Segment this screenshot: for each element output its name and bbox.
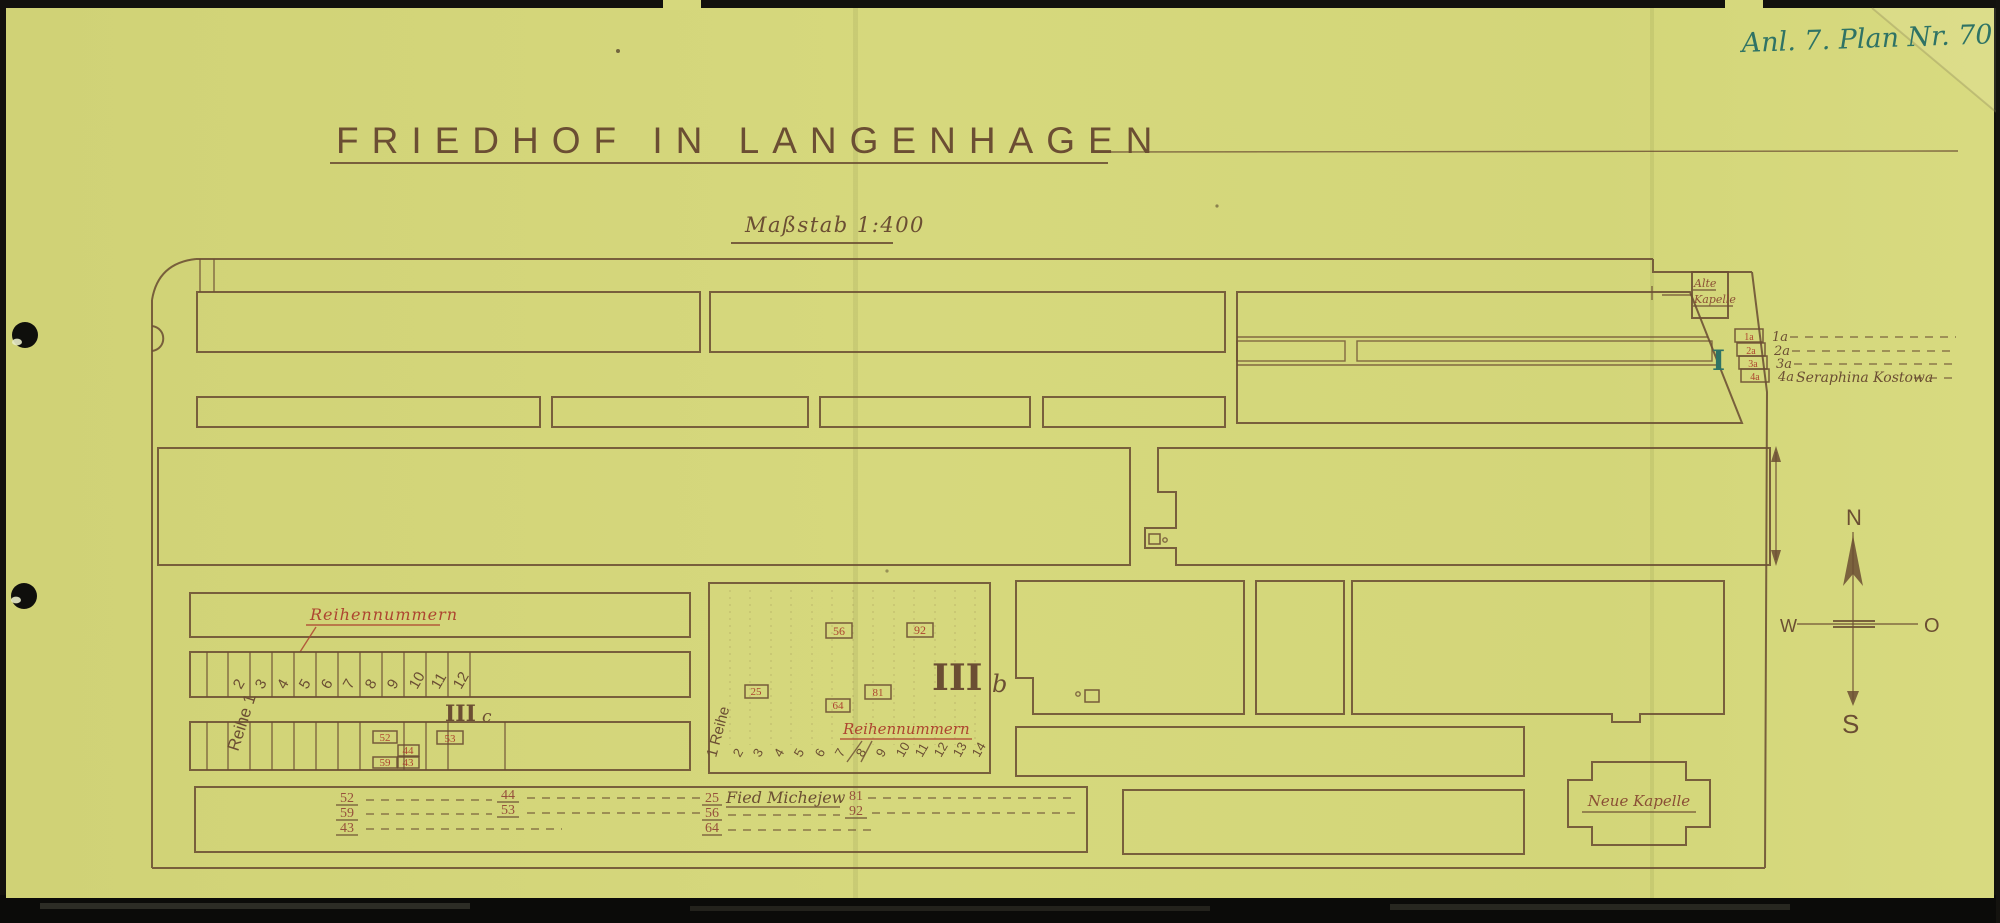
paper-speck bbox=[1215, 204, 1218, 207]
fold-crease bbox=[1650, 8, 1654, 898]
section-mark: I bbox=[1712, 344, 1725, 377]
ledger-number: 56 bbox=[705, 806, 719, 821]
ledger-number: 25 bbox=[705, 791, 719, 806]
paper-speck bbox=[885, 569, 888, 572]
grave-number: 53 bbox=[445, 733, 457, 745]
section-roman-label: III bbox=[932, 657, 983, 699]
row-numbers-caption: Reihennummern bbox=[309, 605, 458, 624]
hole-punch-top bbox=[12, 322, 38, 348]
grave-number: 59 bbox=[380, 757, 392, 769]
grave-number: 44 bbox=[403, 745, 415, 757]
alte-kapelle-label-1: Alte bbox=[1693, 277, 1717, 290]
neue-kapelle-label: Neue Kapelle bbox=[1587, 792, 1691, 810]
scanned-cemetery-plan: Anl. 7. Plan Nr. 70 FRIEDHOF IN LANGENHA… bbox=[0, 0, 2000, 923]
plan-title: FRIEDHOF IN LANGENHAGEN bbox=[336, 120, 1165, 161]
ledger-number: 53 bbox=[501, 803, 515, 818]
section-letter-label: b bbox=[992, 670, 1007, 698]
ledger-number: 64 bbox=[705, 821, 719, 836]
compass-south-label: S bbox=[1842, 709, 1859, 739]
grave-owner-name: Fied Michejew bbox=[725, 788, 846, 807]
ledger-number: 92 bbox=[849, 804, 863, 819]
row-numbers-caption: Reihennummern bbox=[842, 720, 970, 738]
ledger-number: 44 bbox=[501, 788, 515, 803]
hole-punch-bottom bbox=[11, 583, 37, 609]
grave-row-label: 4a bbox=[1777, 370, 1794, 385]
compass-north-label: N bbox=[1846, 505, 1862, 530]
paper-edge-notch bbox=[663, 0, 701, 10]
compass-west-label: W bbox=[1780, 616, 1797, 636]
ledger-number: 43 bbox=[340, 821, 354, 836]
section-letter-label: c bbox=[482, 707, 492, 727]
grave-number: 52 bbox=[380, 732, 391, 744]
alte-kapelle-label-2: Kapelle bbox=[1693, 293, 1736, 306]
grave-number: 81 bbox=[873, 687, 884, 699]
grave-row-label: 1a bbox=[1772, 330, 1788, 345]
grave-number: 43 bbox=[403, 757, 415, 769]
ledger-number: 59 bbox=[340, 806, 354, 821]
grave-number: 56 bbox=[833, 624, 845, 638]
grave-number: 64 bbox=[833, 700, 845, 712]
ledger-number: 81 bbox=[849, 789, 863, 804]
ledger-number: 52 bbox=[340, 791, 354, 806]
grave-owner-name: Seraphina Kostowa bbox=[1796, 370, 1933, 386]
grave-number: 1a bbox=[1744, 332, 1754, 343]
grave-number: 92 bbox=[914, 623, 926, 637]
grave-number: 25 bbox=[751, 686, 763, 698]
section-roman-label: III bbox=[445, 701, 476, 727]
paper-edge-notch bbox=[1725, 0, 1763, 10]
paper-speck bbox=[616, 49, 620, 53]
grave-number: 4a bbox=[1750, 372, 1760, 383]
scale-label: Maßstab 1:400 bbox=[744, 213, 925, 237]
compass-east-label: O bbox=[1924, 615, 1940, 637]
